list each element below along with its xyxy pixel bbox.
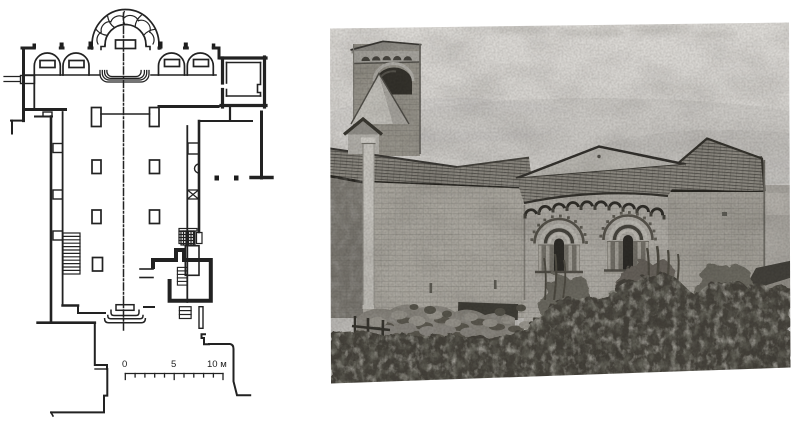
svg-text:0: 0 bbox=[122, 359, 127, 370]
svg-text:5: 5 bbox=[171, 359, 176, 370]
svg-text:10 м: 10 м bbox=[207, 359, 227, 370]
